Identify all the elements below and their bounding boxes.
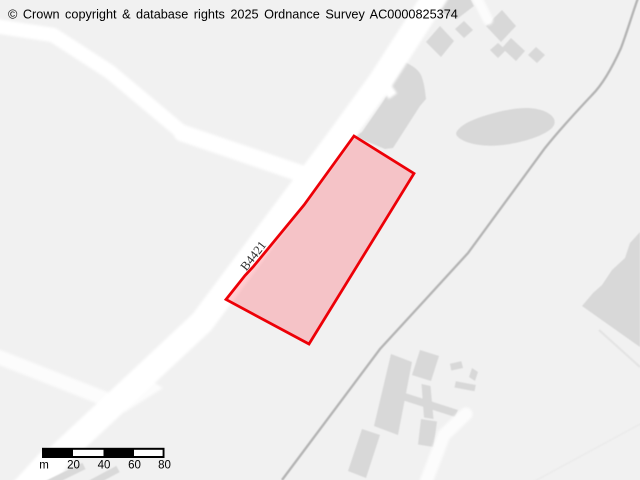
svg-text:40: 40 [98,459,111,471]
svg-text:m: m [39,459,49,471]
svg-text:60: 60 [128,459,141,471]
svg-text:80: 80 [158,459,171,471]
svg-text:© Crown copyright & database r: © Crown copyright & database rights 2025… [8,7,458,21]
svg-text:20: 20 [67,459,80,471]
